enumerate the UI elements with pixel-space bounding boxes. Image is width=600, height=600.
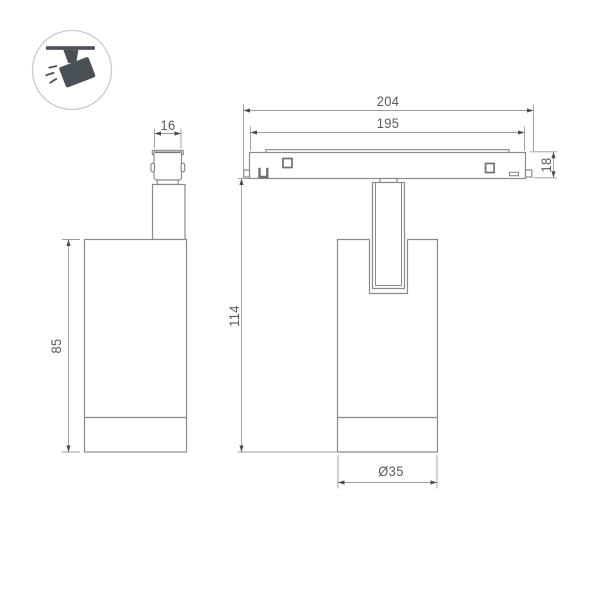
dim-label-rail-height: 18 — [539, 157, 553, 172]
side-body — [85, 240, 187, 453]
rail-tab-right — [526, 170, 532, 177]
front-neck — [380, 179, 397, 183]
front-arm-outer — [373, 183, 405, 289]
side-connector-ear-right — [181, 163, 185, 172]
logo-track-bar — [46, 46, 95, 50]
dimension-drawing — [0, 0, 600, 600]
dim-label-body-diameter: Ø35 — [378, 464, 403, 478]
track-spotlight-icon — [33, 31, 112, 110]
dim-label-total-length: 204 — [377, 94, 400, 108]
dim-label-connector-width: 16 — [160, 118, 175, 132]
side-connector-ear-left — [151, 163, 155, 172]
side-view-drawing — [85, 150, 187, 452]
rail-square-hole-right — [486, 164, 495, 173]
dim-114-lines — [238, 179, 338, 453]
side-neck — [157, 180, 178, 185]
rail-slot-detail — [510, 172, 519, 175]
dim-85-lines — [62, 240, 80, 453]
dim-label-overall-height: 114 — [227, 305, 241, 327]
technical-drawing-canvas: 16 85 204 195 18 114 Ø35 — [0, 0, 600, 600]
side-track-connector — [154, 150, 182, 180]
dim-label-rail-length: 195 — [377, 116, 400, 130]
dim-label-body-height: 85 — [49, 338, 63, 353]
side-arm — [153, 185, 186, 240]
rail-square-hole-left — [283, 159, 292, 168]
front-view-drawing — [244, 150, 532, 452]
rail-tab-left — [244, 170, 250, 177]
